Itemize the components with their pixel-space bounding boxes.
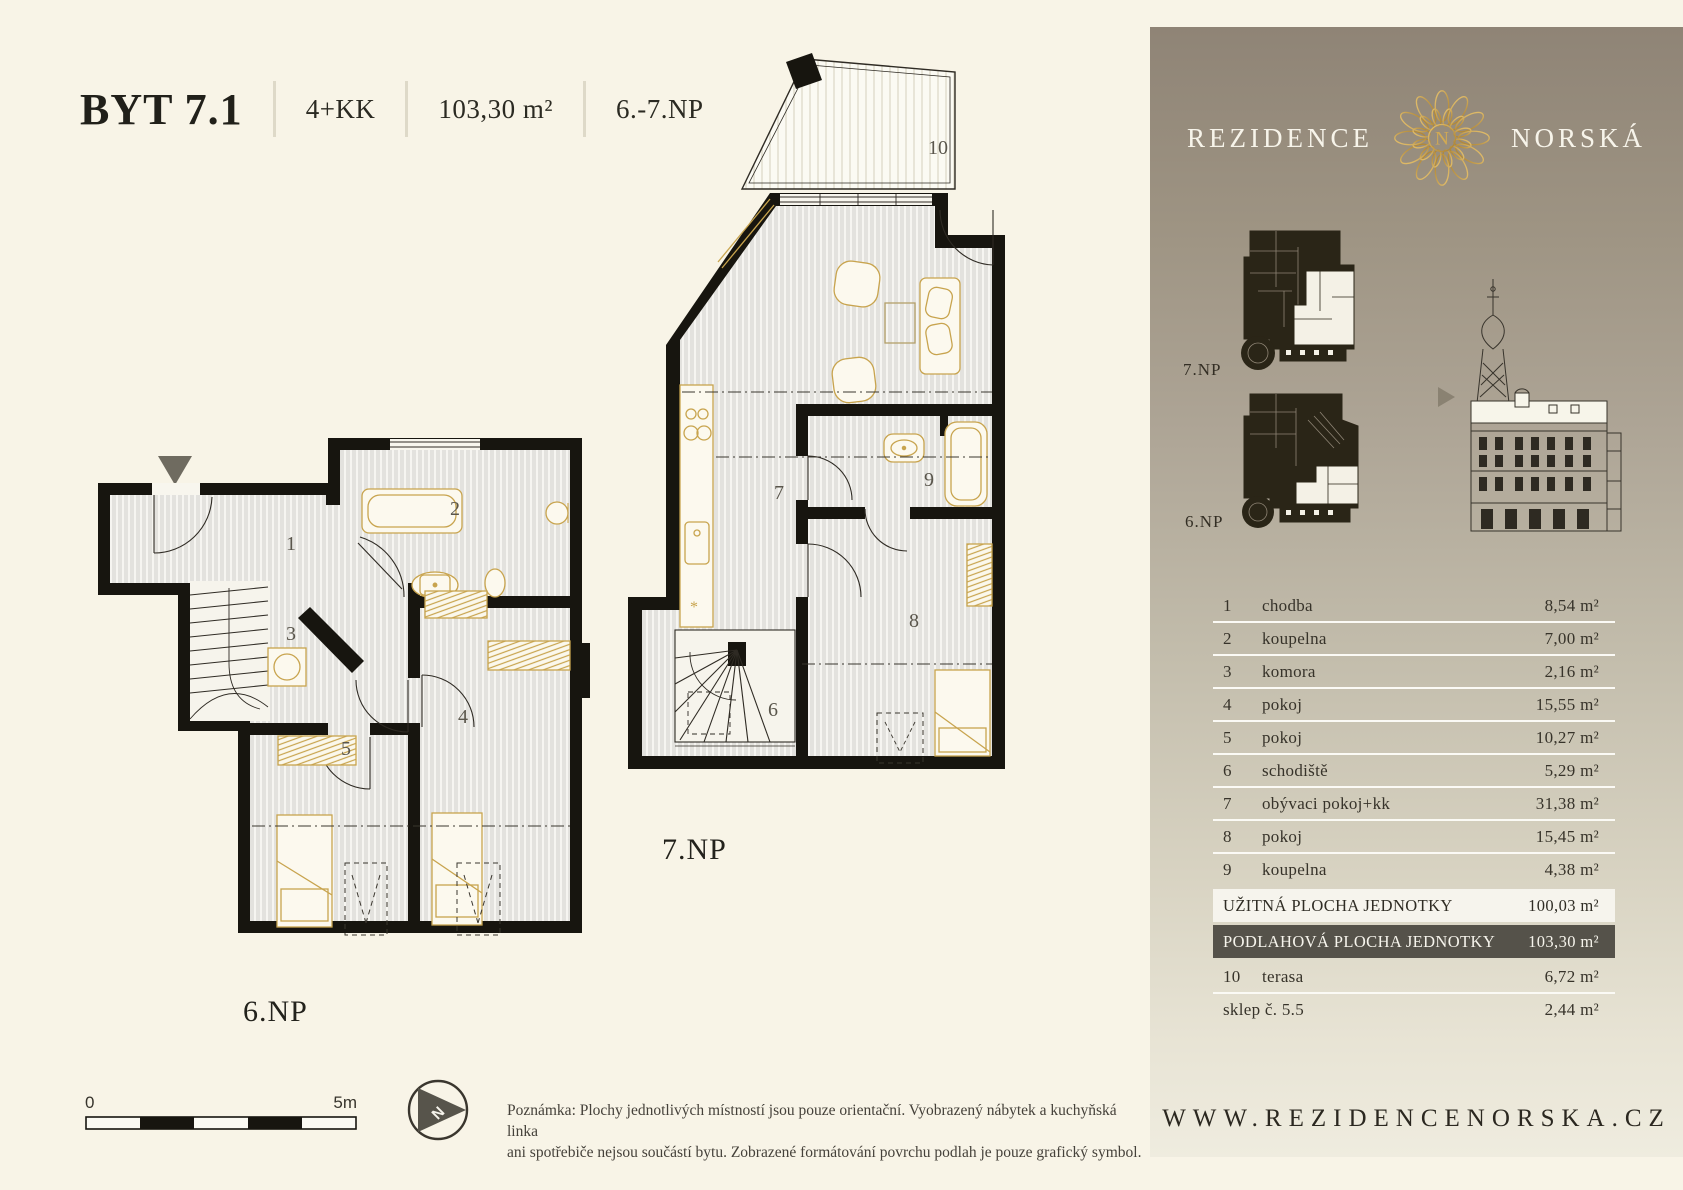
brand-monogram: N	[1435, 129, 1449, 150]
room-number: 7	[774, 482, 784, 504]
unit-layout: 4+KK	[306, 94, 376, 125]
summary-value: 100,03 m²	[1528, 896, 1599, 916]
room-number: 1	[286, 533, 296, 555]
floorplan-7np: *	[590, 52, 1020, 787]
thumbnail-label-7np: 7.NP	[1183, 360, 1221, 380]
table-row: 5pokoj10,27 m²	[1213, 722, 1615, 755]
footnote: Poznámka: Plochy jednotlivých místností …	[507, 1100, 1143, 1163]
room-area-cell: 15,55 m²	[1536, 695, 1615, 715]
plan-label-7np: 7.NP	[662, 833, 727, 867]
table-row: 2koupelna7,00 m²	[1213, 623, 1615, 656]
room-name-cell: koupelna	[1262, 629, 1545, 649]
room-number: 2	[450, 498, 460, 520]
room-name-cell: pokoj	[1262, 695, 1536, 715]
table-row: 4pokoj15,55 m²	[1213, 689, 1615, 722]
room-area-cell: 7,00 m²	[1545, 629, 1615, 649]
building-elevation	[1433, 275, 1623, 547]
room-number-cell: 8	[1213, 827, 1262, 847]
room-area-cell: 2,16 m²	[1545, 662, 1615, 682]
table-row: sklep č. 5.52,44 m²	[1213, 994, 1615, 1025]
staircase	[675, 630, 795, 746]
room-name-cell: obývaci pokoj+kk	[1262, 794, 1536, 814]
room-area-cell: 31,38 m²	[1536, 794, 1615, 814]
brand-word-left: REZIDENCE	[1187, 123, 1373, 154]
room-area-cell: 6,72 m²	[1545, 967, 1615, 987]
table-row: 7obývaci pokoj+kk31,38 m²	[1213, 788, 1615, 821]
washbasin	[546, 502, 568, 524]
floorplan-sheet: BYT 7.1 4+KK 103,30 m² 6.-7.NP	[0, 0, 1683, 1190]
pillow	[281, 889, 328, 921]
room-number: 6	[768, 699, 778, 721]
room-number: 4	[458, 706, 468, 728]
svg-text:*: *	[690, 599, 698, 616]
room-area-cell: 10,27 m²	[1536, 728, 1615, 748]
header-divider	[273, 81, 276, 137]
thumbnail-label-6np: 6.NP	[1185, 512, 1223, 532]
room-name-cell: pokoj	[1262, 728, 1536, 748]
room-area-cell: 15,45 m²	[1536, 827, 1615, 847]
summary-value: 103,30 m²	[1528, 932, 1599, 952]
room-area-cell: 8,54 m²	[1545, 596, 1615, 616]
footnote-line: Poznámka: Plochy jednotlivých místností …	[507, 1100, 1143, 1142]
room-number: 5	[341, 738, 351, 760]
room-number-cell: 10	[1213, 967, 1262, 987]
room-name-cell: komora	[1262, 662, 1545, 682]
room-area-cell: 4,38 m²	[1545, 860, 1615, 880]
room-number-cell: 9	[1213, 860, 1262, 880]
radiator	[967, 544, 992, 606]
table-row: 9koupelna4,38 m²	[1213, 854, 1615, 885]
room-number-cell: 4	[1213, 695, 1262, 715]
terrace-window	[780, 194, 932, 205]
thumbnail-plan-7np	[1228, 227, 1364, 383]
sidebar: REZIDENCE N NORSKÁ	[1150, 27, 1683, 1157]
radiator	[488, 641, 570, 670]
room-number-cell: 2	[1213, 629, 1262, 649]
room-number-cell: 6	[1213, 761, 1262, 781]
north-compass-icon: N	[405, 1077, 471, 1143]
room-area-cell: 2,44 m²	[1545, 1000, 1615, 1020]
table-row: 8pokoj15,45 m²	[1213, 821, 1615, 854]
room-area-cell: 5,29 m²	[1545, 761, 1615, 781]
brand-mandala-icon: N	[1389, 85, 1495, 191]
unit-area: 103,30 m²	[438, 94, 553, 125]
scale-bar-graphic	[85, 1116, 357, 1131]
scale-bar: 0 5m	[85, 1093, 357, 1136]
room-number-cell: 7	[1213, 794, 1262, 814]
table-row: 3komora2,16 m²	[1213, 656, 1615, 689]
bathroom-window	[390, 439, 480, 450]
entrance-arrow-icon	[158, 456, 192, 485]
header-divider	[583, 81, 586, 137]
scale-start: 0	[85, 1093, 94, 1113]
area-table: 1chodba8,54 m²2koupelna7,00 m²3komora2,1…	[1213, 590, 1615, 1025]
room-number: 9	[924, 469, 934, 491]
summary-label: UŽITNÁ PLOCHA JEDNOTKY	[1223, 896, 1453, 916]
room-name-cell: sklep č. 5.5	[1213, 1000, 1545, 1020]
table-row: 10terasa6,72 m²	[1213, 961, 1615, 994]
room-number-cell: 1	[1213, 596, 1262, 616]
brand-word-right: NORSKÁ	[1511, 123, 1646, 154]
armchair	[832, 259, 882, 309]
brand-logo: REZIDENCE N NORSKÁ	[1150, 85, 1683, 191]
radiator	[425, 591, 487, 618]
floor-indicator-arrow-icon	[1438, 387, 1455, 407]
room-name-cell: koupelna	[1262, 860, 1545, 880]
room-number-cell: 3	[1213, 662, 1262, 682]
table-row: 6schodiště5,29 m²	[1213, 755, 1615, 788]
armchair	[830, 356, 877, 405]
toilet	[485, 569, 505, 597]
header-divider	[405, 81, 408, 137]
table-row: 1chodba8,54 m²	[1213, 590, 1615, 623]
summary-label: PODLAHOVÁ PLOCHA JEDNOTKY	[1223, 932, 1495, 952]
room-number-cell: 5	[1213, 728, 1262, 748]
thumbnail-plan-6np	[1230, 390, 1366, 540]
floorplan-6np: 1 2 3 4 5	[90, 423, 590, 938]
summary-row-light: UŽITNÁ PLOCHA JEDNOTKY100,03 m²	[1213, 889, 1615, 922]
scale-end: 5m	[333, 1093, 357, 1113]
terrace	[742, 53, 955, 189]
footnote-line: ani spotřebiče nejsou součástí bytu. Zob…	[507, 1142, 1143, 1163]
room-name-cell: pokoj	[1262, 827, 1536, 847]
room-number: 10	[928, 137, 948, 159]
room-number: 3	[286, 623, 296, 645]
room-name-cell: chodba	[1262, 596, 1545, 616]
room-name-cell: schodiště	[1262, 761, 1545, 781]
unit-title: BYT 7.1	[80, 84, 243, 135]
room-number: 8	[909, 610, 919, 632]
plan-label-6np: 6.NP	[243, 995, 308, 1029]
room-name-cell: terasa	[1262, 967, 1545, 987]
summary-row-dark: PODLAHOVÁ PLOCHA JEDNOTKY103,30 m²	[1213, 925, 1615, 958]
website-url[interactable]: WWW.REZIDENCENORSKA.CZ	[1150, 1105, 1683, 1133]
